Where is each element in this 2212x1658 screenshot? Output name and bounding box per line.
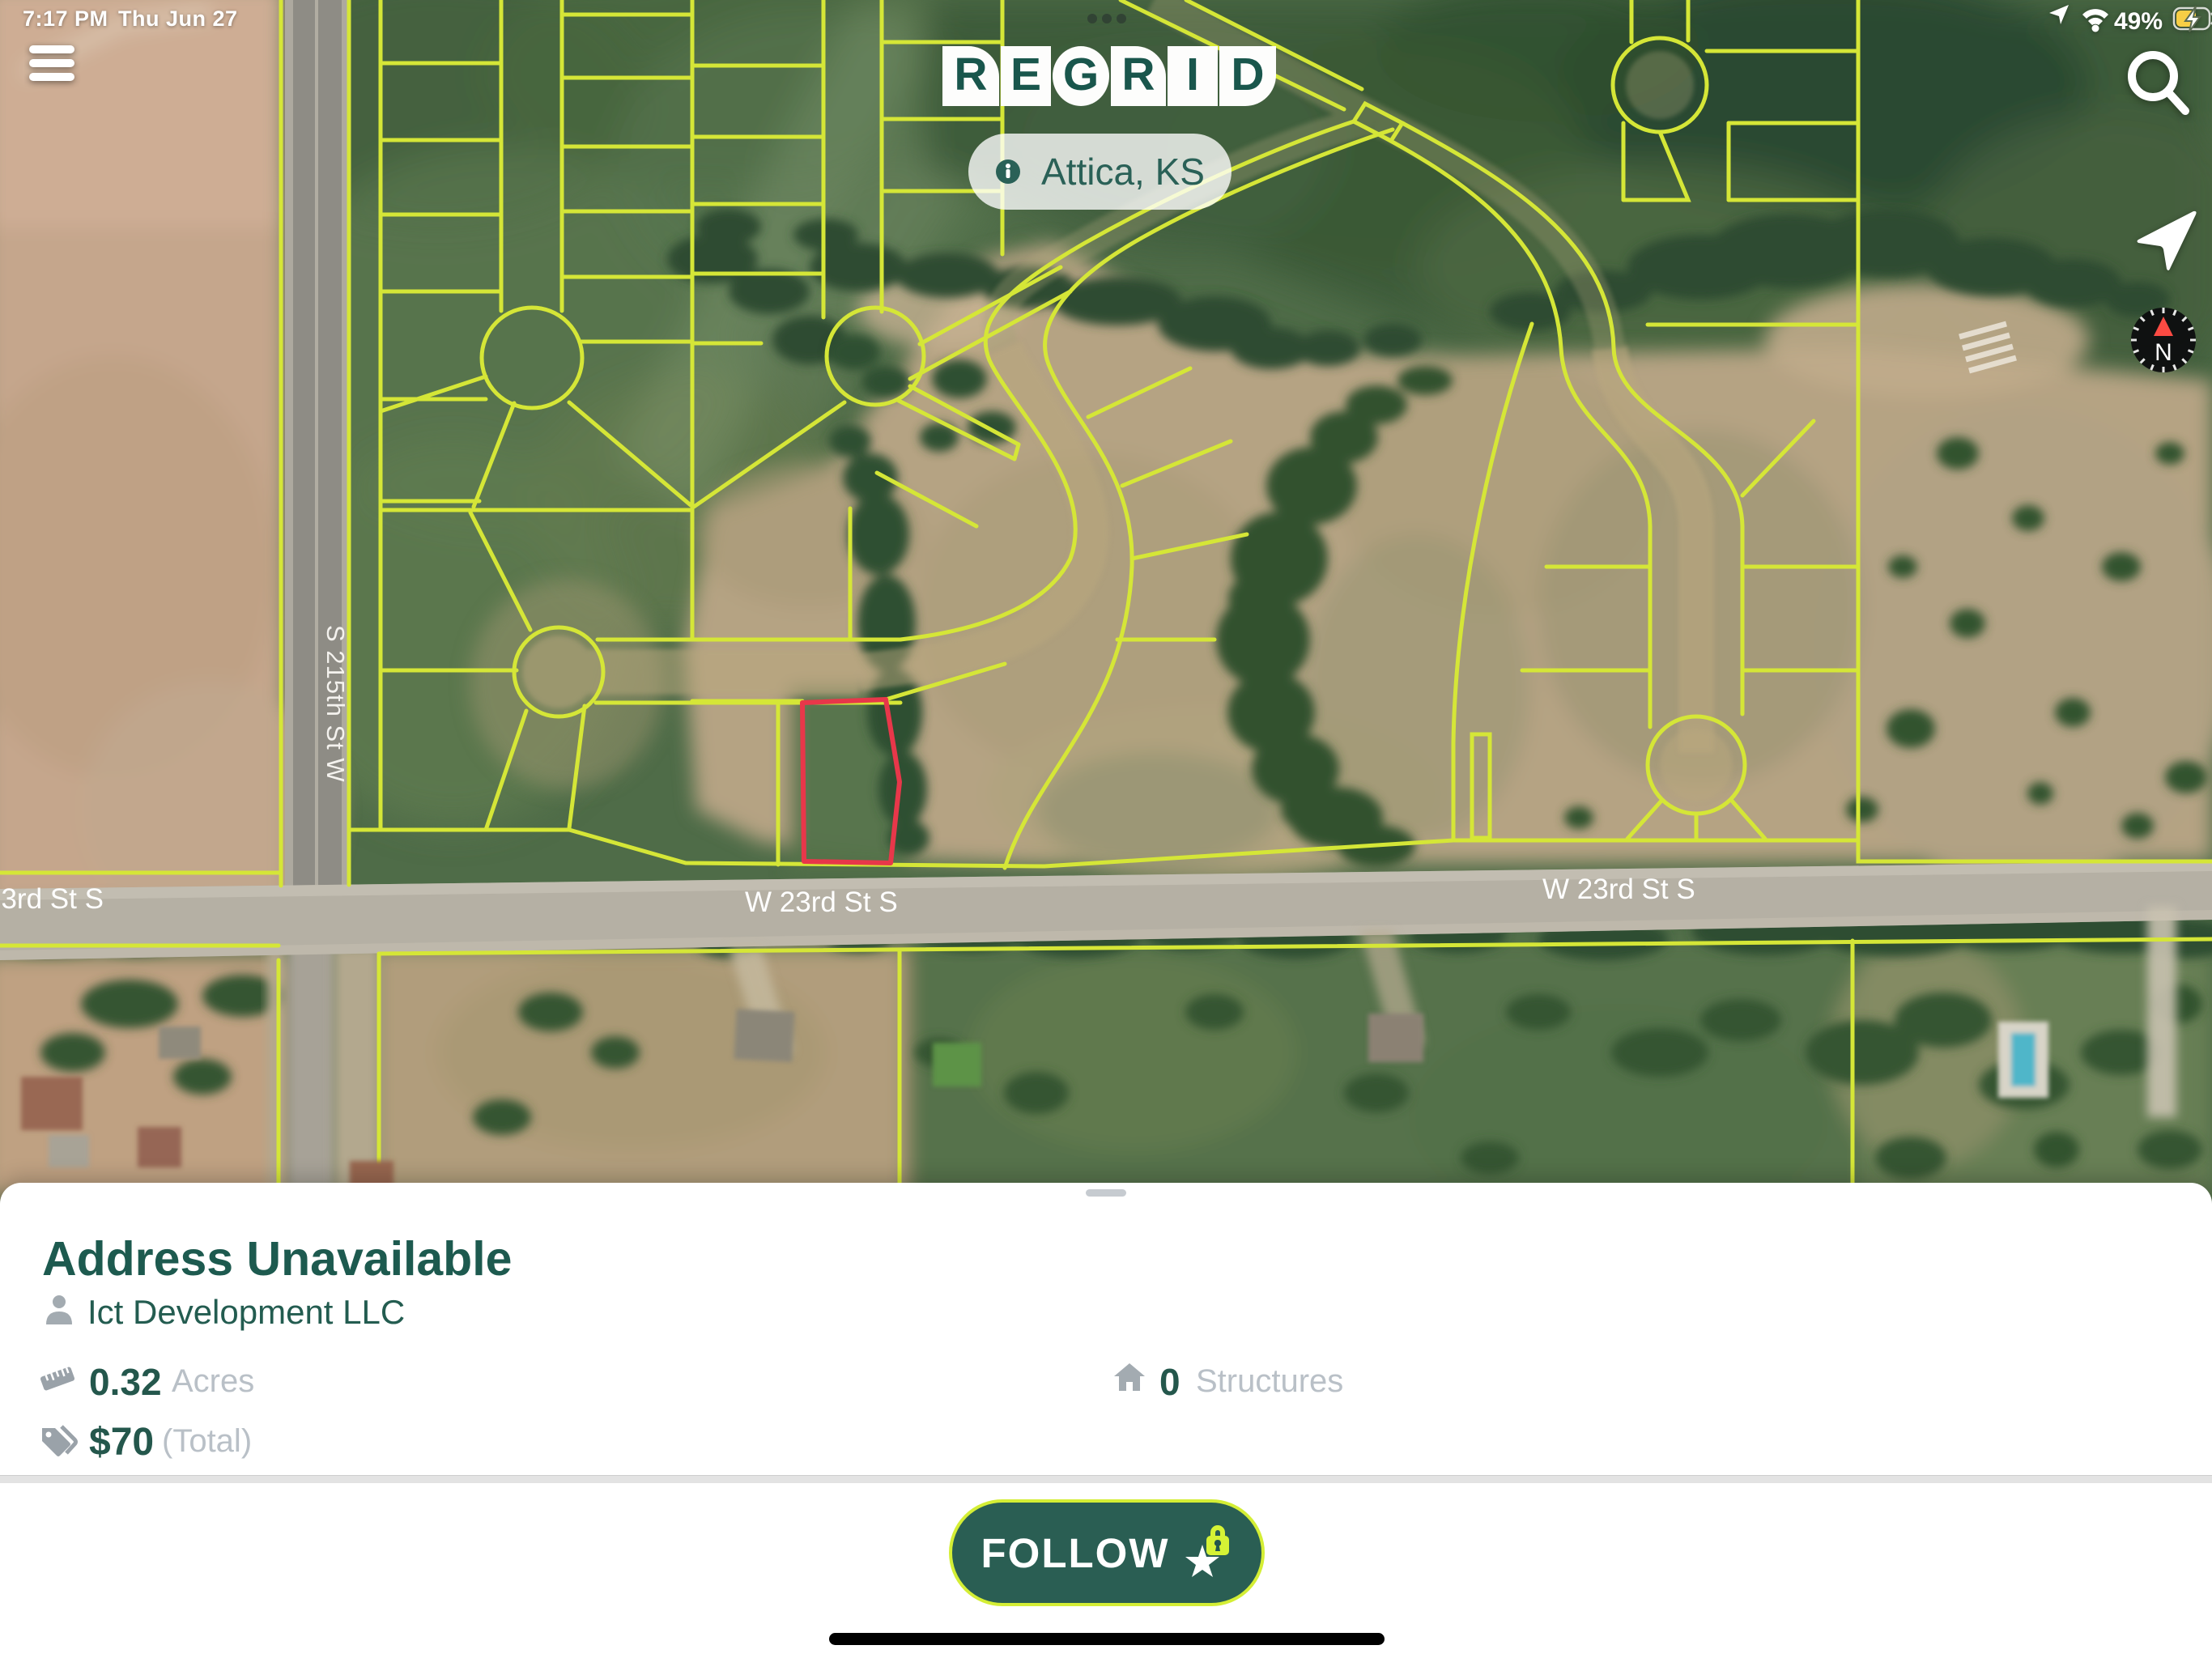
svg-text:23rd St S: 23rd St S xyxy=(0,883,104,915)
svg-text:S 215th St W: S 215th St W xyxy=(321,625,350,783)
svg-text:49%: 49% xyxy=(2114,8,2163,35)
svg-text:N: N xyxy=(2155,339,2172,366)
svg-text:W 23rd St S: W 23rd St S xyxy=(1542,874,1695,905)
svg-text:W 23rd St S: W 23rd St S xyxy=(745,886,898,918)
